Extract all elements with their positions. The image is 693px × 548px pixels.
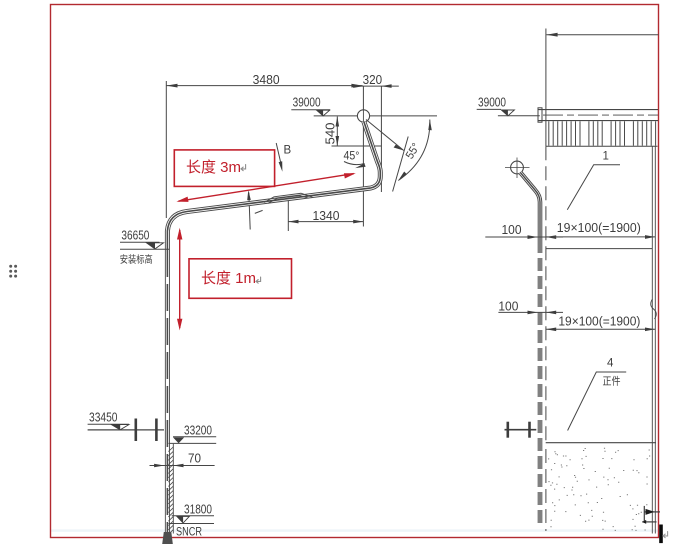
svg-text:31800: 31800 bbox=[184, 503, 212, 517]
svg-text:540: 540 bbox=[324, 122, 338, 144]
svg-text:100: 100 bbox=[498, 300, 518, 314]
svg-text:SNCR: SNCR bbox=[176, 527, 202, 539]
svg-text:1340: 1340 bbox=[313, 209, 340, 223]
svg-text:19×100(=1900): 19×100(=1900) bbox=[557, 221, 641, 235]
svg-text:B: B bbox=[284, 145, 292, 157]
svg-text:3480: 3480 bbox=[253, 73, 280, 87]
svg-text:长度 1m: 长度 1m bbox=[201, 270, 256, 287]
svg-text:19×100(=1900): 19×100(=1900) bbox=[558, 314, 640, 328]
svg-text:100: 100 bbox=[502, 223, 522, 237]
svg-text:36650: 36650 bbox=[121, 228, 149, 242]
svg-text:正件: 正件 bbox=[603, 376, 621, 388]
svg-text:33200: 33200 bbox=[184, 423, 212, 437]
svg-text:39000: 39000 bbox=[478, 95, 506, 109]
svg-text:1: 1 bbox=[603, 151, 609, 163]
svg-text:70: 70 bbox=[188, 451, 201, 465]
svg-text:320: 320 bbox=[363, 73, 383, 87]
svg-text:45°: 45° bbox=[344, 151, 360, 163]
svg-text:安装标高: 安装标高 bbox=[120, 253, 153, 266]
svg-text:4: 4 bbox=[607, 358, 614, 370]
svg-text:长度 3m: 长度 3m bbox=[186, 159, 241, 176]
svg-text:39000: 39000 bbox=[293, 96, 321, 110]
svg-text:33450: 33450 bbox=[89, 411, 118, 425]
